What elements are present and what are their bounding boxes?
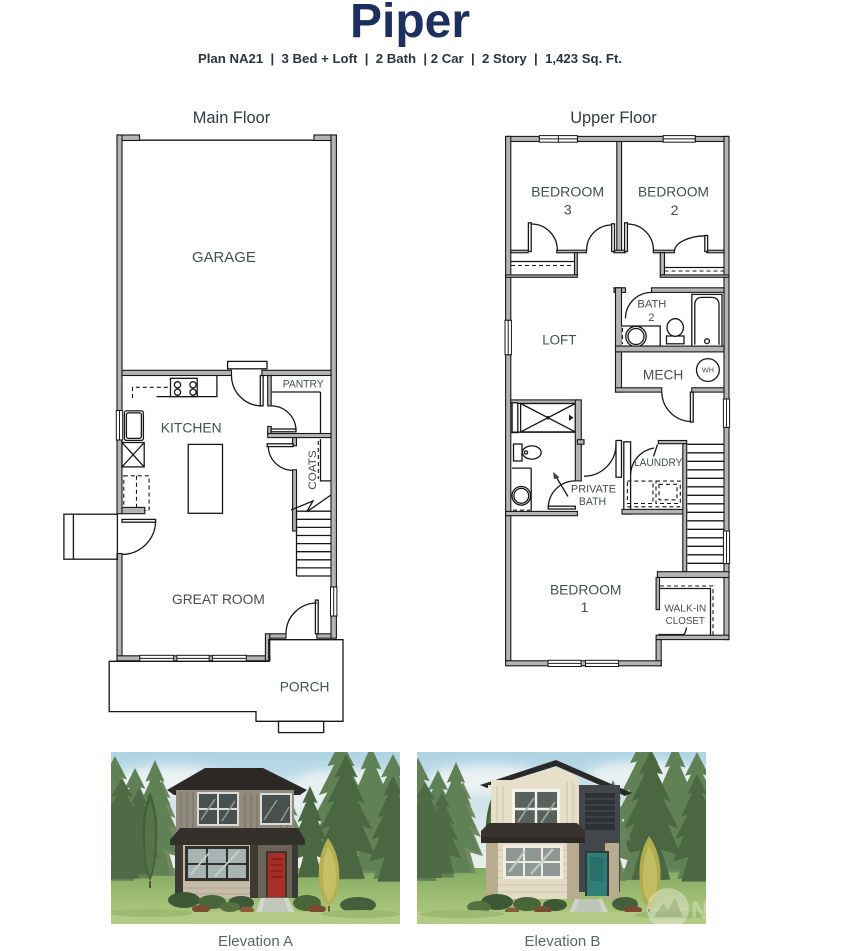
svg-text:2: 2: [648, 312, 654, 324]
svg-text:3: 3: [564, 202, 572, 218]
svg-text:LOFT: LOFT: [542, 332, 576, 347]
svg-text:Piper: Piper: [350, 0, 470, 48]
svg-text:BEDROOM: BEDROOM: [638, 184, 709, 200]
svg-text:2: 2: [671, 202, 679, 218]
svg-text:GARAGE: GARAGE: [192, 250, 256, 266]
svg-text:COATS: COATS: [307, 450, 319, 490]
svg-text:GREAT ROOM: GREAT ROOM: [172, 592, 265, 607]
svg-text:BATH: BATH: [637, 298, 666, 310]
svg-text:BEDROOM: BEDROOM: [550, 581, 622, 597]
svg-text:Main Floor: Main Floor: [193, 109, 271, 127]
svg-text:Elevation A: Elevation A: [218, 933, 293, 950]
svg-text:WALK-IN: WALK-IN: [664, 604, 706, 615]
svg-text:BEDROOM: BEDROOM: [531, 184, 604, 200]
svg-text:PRIVATE: PRIVATE: [571, 484, 616, 496]
svg-text:BATH: BATH: [579, 496, 606, 508]
svg-text:PANTRY: PANTRY: [283, 379, 325, 391]
svg-text:Plan NA21 | 3 Bed + Loft |: Plan NA21 | 3 Bed + Loft | 2 Bath | 2 Ca…: [198, 51, 622, 66]
svg-text:KITCHEN: KITCHEN: [161, 420, 222, 436]
svg-text:Elevation B: Elevation B: [525, 933, 601, 950]
svg-text:1: 1: [581, 599, 589, 615]
svg-text:Upper Floor: Upper Floor: [570, 109, 657, 127]
svg-text:PORCH: PORCH: [280, 679, 330, 694]
svg-text:MECH: MECH: [643, 367, 683, 382]
svg-text:N: N: [691, 897, 708, 924]
svg-text:CLOSET: CLOSET: [666, 616, 705, 627]
svg-text:LAUNDRY: LAUNDRY: [634, 457, 683, 469]
svg-text:WH: WH: [702, 366, 714, 375]
